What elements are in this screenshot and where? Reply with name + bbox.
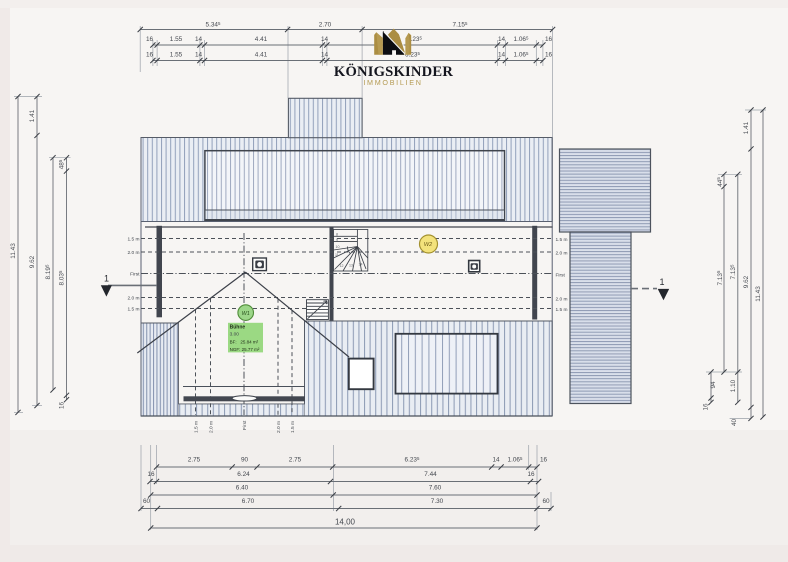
svg-text:1.55: 1.55	[170, 36, 183, 43]
svg-text:6.70: 6.70	[242, 498, 255, 505]
svg-text:1.5 m: 1.5 m	[128, 237, 140, 243]
svg-text:2.0 m: 2.0 m	[128, 250, 140, 256]
svg-text:11: 11	[335, 253, 339, 257]
svg-text:14: 14	[321, 52, 329, 59]
svg-text:14: 14	[359, 263, 363, 267]
svg-text:11.43: 11.43	[755, 286, 762, 302]
svg-text:First: First	[242, 420, 248, 430]
svg-text:16: 16	[540, 457, 548, 464]
svg-text:4.41: 4.41	[255, 52, 268, 59]
svg-text:13: 13	[349, 264, 353, 268]
svg-text:6.40: 6.40	[236, 485, 249, 492]
svg-text:7.60: 7.60	[429, 485, 442, 492]
svg-text:1.5 m: 1.5 m	[194, 421, 200, 433]
svg-text:14: 14	[492, 457, 500, 464]
svg-text:2.0 m: 2.0 m	[128, 296, 140, 302]
svg-text:16: 16	[146, 36, 154, 43]
svg-text:14: 14	[498, 36, 506, 43]
svg-text:2.70: 2.70	[319, 22, 332, 29]
svg-text:90: 90	[241, 457, 249, 464]
svg-text:16: 16	[703, 403, 710, 411]
svg-text:16: 16	[545, 36, 553, 43]
svg-text:W1: W1	[242, 311, 250, 317]
svg-text:10: 10	[336, 245, 340, 249]
svg-text:Bühne: Bühne	[230, 324, 246, 330]
svg-text:IMMOBILIEN: IMMOBILIEN	[363, 78, 422, 87]
svg-text:2.75: 2.75	[289, 457, 302, 464]
svg-text:40: 40	[731, 419, 738, 427]
svg-text:1.5 m: 1.5 m	[556, 237, 568, 243]
svg-text:1.41: 1.41	[29, 109, 36, 122]
svg-text:NGF: 25.77 m²: NGF: 25.77 m²	[230, 347, 260, 352]
svg-text:9: 9	[336, 238, 338, 242]
svg-text:12: 12	[340, 264, 344, 268]
svg-text:1.10: 1.10	[730, 379, 737, 392]
svg-text:94: 94	[710, 381, 717, 389]
svg-text:2.0 m: 2.0 m	[276, 421, 282, 433]
svg-text:7.30: 7.30	[431, 498, 444, 505]
svg-text:1.5 m: 1.5 m	[290, 421, 296, 433]
svg-text:9.62: 9.62	[29, 255, 36, 268]
svg-text:16: 16	[146, 52, 154, 59]
svg-text:First: First	[130, 272, 140, 278]
svg-text:2.0 m: 2.0 m	[556, 296, 568, 302]
svg-text:2.75: 2.75	[188, 457, 201, 464]
svg-text:9.62: 9.62	[743, 275, 750, 288]
svg-text:16: 16	[545, 52, 553, 59]
svg-text:16: 16	[527, 471, 535, 478]
svg-text:W2: W2	[424, 242, 432, 248]
svg-text:6.24: 6.24	[237, 471, 250, 478]
svg-text:14: 14	[321, 36, 329, 43]
svg-text:8: 8	[336, 232, 338, 236]
svg-text:3.00: 3.00	[230, 331, 240, 337]
svg-text:1.5 m: 1.5 m	[128, 307, 140, 313]
svg-text:1: 1	[104, 274, 109, 284]
svg-text:7.44: 7.44	[424, 471, 437, 478]
svg-text:60: 60	[542, 498, 550, 505]
svg-text:14: 14	[195, 52, 203, 59]
svg-text:1.5 m: 1.5 m	[556, 307, 568, 313]
svg-text:11.43: 11.43	[10, 243, 17, 259]
svg-text:1: 1	[660, 277, 665, 287]
svg-text:60: 60	[143, 498, 151, 505]
svg-text:2.0 m: 2.0 m	[209, 421, 215, 433]
svg-text:First: First	[556, 272, 566, 278]
svg-text:1.55: 1.55	[170, 52, 183, 59]
svg-text:14: 14	[498, 52, 506, 59]
svg-text:4.41: 4.41	[255, 36, 268, 43]
svg-text:BF: 25.84 m²: BF: 25.84 m²	[230, 340, 259, 345]
svg-text:16: 16	[147, 471, 155, 478]
svg-text:14,00: 14,00	[335, 518, 356, 527]
svg-text:2.0 m: 2.0 m	[556, 251, 568, 257]
svg-text:16: 16	[59, 402, 66, 410]
svg-text:14: 14	[195, 36, 203, 43]
svg-text:1.41: 1.41	[743, 121, 750, 134]
